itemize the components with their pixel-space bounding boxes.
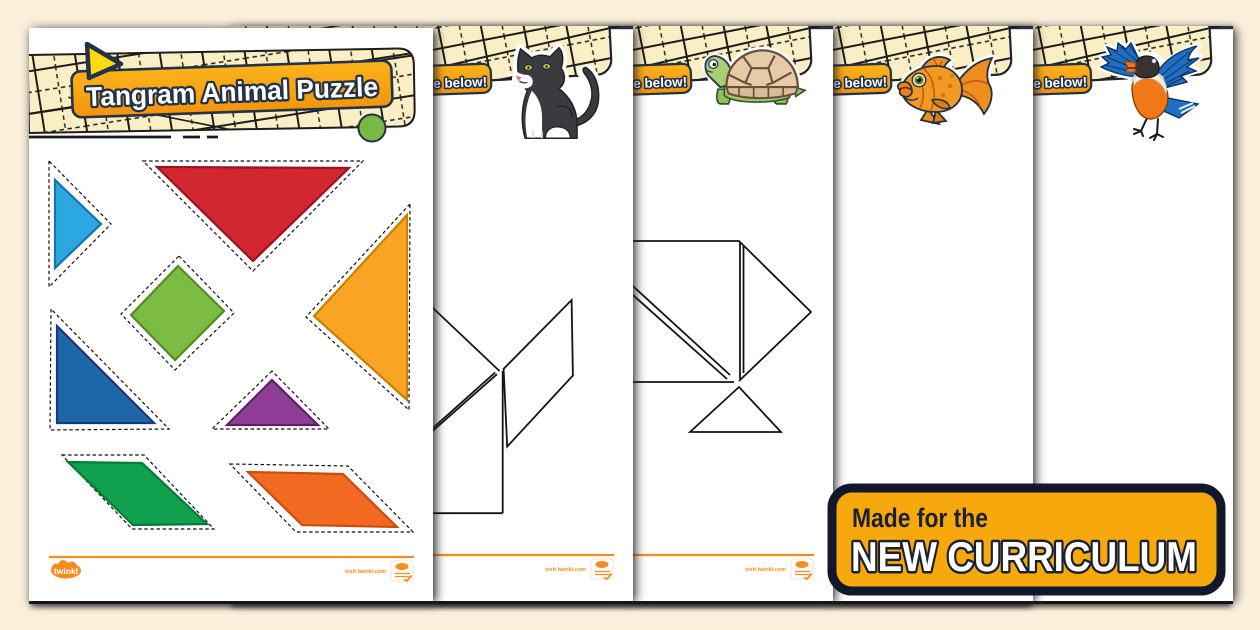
svg-text:Made for the: Made for the (852, 503, 988, 533)
svg-text:twinkl: twinkl (54, 566, 78, 576)
svg-text:visit twinkl.com: visit twinkl.com (545, 567, 586, 573)
svg-text:visit twinkl.com: visit twinkl.com (345, 569, 386, 575)
svg-text:NEW CURRICULUM: NEW CURRICULUM (851, 533, 1197, 580)
svg-text:visit twinkl.com: visit twinkl.com (745, 567, 786, 573)
